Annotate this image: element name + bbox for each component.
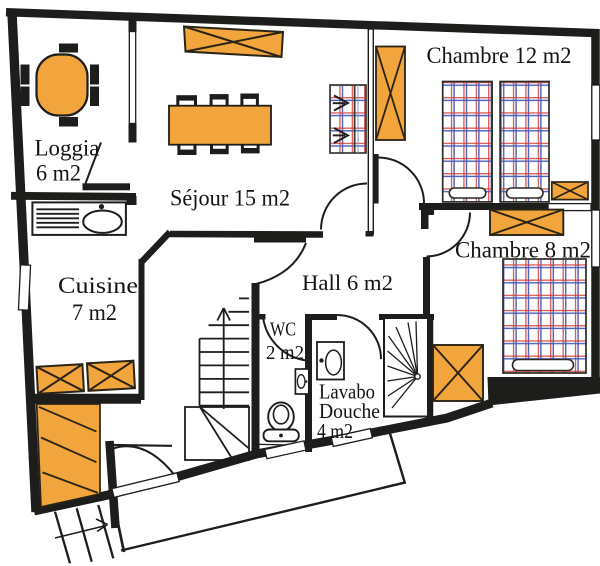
svg-text:7 m2: 7 m2 [72, 300, 117, 325]
svg-text:Chambre 12 m2: Chambre 12 m2 [427, 43, 572, 69]
svg-text:2 m2: 2 m2 [266, 342, 304, 364]
svg-text:WC: WC [270, 319, 296, 341]
svg-text:Hall 6 m2: Hall 6 m2 [302, 270, 393, 295]
svg-text:Loggia: Loggia [35, 136, 100, 161]
svg-text:Chambre 8 m2: Chambre 8 m2 [455, 238, 591, 264]
svg-text:4 m2: 4 m2 [317, 419, 353, 443]
svg-text:Cuisine: Cuisine [58, 273, 138, 298]
svg-text:Séjour 15 m2: Séjour 15 m2 [170, 186, 290, 211]
svg-text:6 m2: 6 m2 [36, 161, 81, 186]
